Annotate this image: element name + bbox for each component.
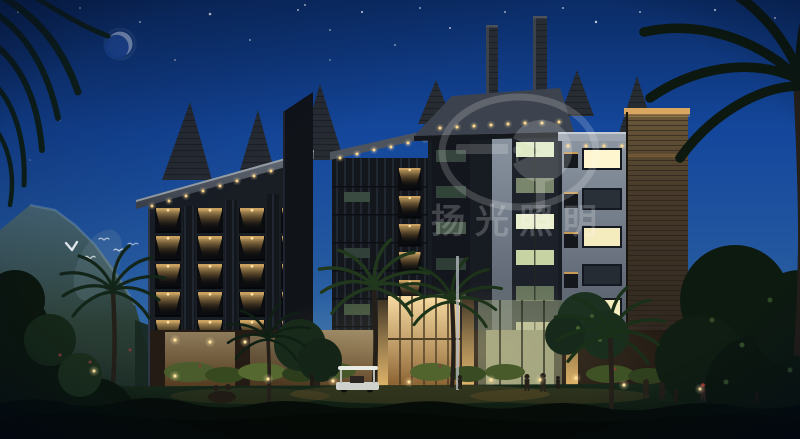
architectural-rendering: 扬光照明	[0, 0, 800, 439]
watermark-text: 扬光照明	[431, 202, 607, 242]
corner-shade	[0, 0, 800, 439]
